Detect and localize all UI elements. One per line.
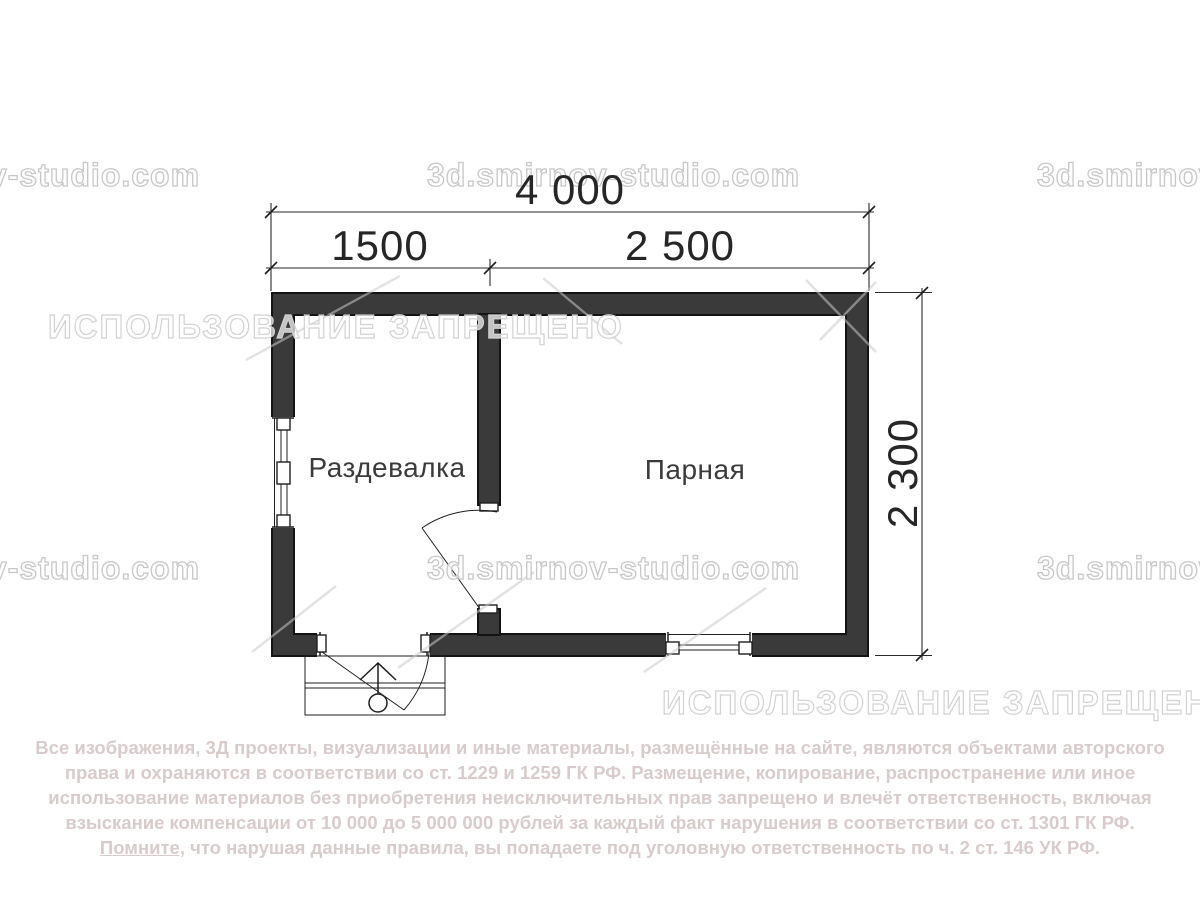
dimension-right-room-width: 2 500: [570, 222, 790, 270]
dimension-total-width: 4 000: [460, 166, 680, 214]
watermark-site-url: 3d.smirnov-studio.com: [1037, 550, 1200, 587]
watermark-usage-banned: ИСПОЛЬЗОВАНИЕ ЗАПРЕЩЕНО: [48, 308, 624, 346]
copyright-line: взыскание компенсации от 10 000 до 5 000…: [0, 810, 1200, 835]
room-label-steam-room: Парная: [595, 454, 795, 486]
dimension-lines: [265, 203, 932, 661]
copyright-notice: Все изображения, 3Д проекты, визуализаци…: [0, 735, 1200, 860]
watermark-site-url: 3d.smirnov-studio.com: [427, 550, 800, 587]
copyright-line-rest: что нарушая данные правила, вы попадаете…: [185, 837, 1100, 858]
room-label-changing-room: Раздевалка: [287, 452, 487, 484]
copyright-line: права и охраняются в соответствии со ст.…: [0, 760, 1200, 785]
watermark-usage-banned: ИСПОЛЬЗОВАНИЕ ЗАПРЕЩЕНО: [662, 684, 1200, 722]
bottom-window: [666, 630, 752, 658]
copyright-line: Помните, что нарушая данные правила, вы …: [0, 835, 1200, 860]
copyright-remember-underline: Помните,: [100, 837, 185, 858]
watermark-site-url: 3d.smirnov-studio.com: [1037, 157, 1200, 194]
dimension-left-room-width: 1500: [270, 222, 490, 270]
entrance-door: [317, 630, 430, 710]
watermark-site-url: 3d.smirnov-studio.com: [0, 157, 200, 194]
copyright-line: Все изображения, 3Д проекты, визуализаци…: [0, 735, 1200, 760]
copyright-line: использование материалов без приобретени…: [0, 785, 1200, 810]
watermark-site-url: 3d.smirnov-studio.com: [0, 550, 200, 587]
floor-plan-image: 4 000 1500 2 500 2 300 Раздевалка Парная…: [0, 0, 1200, 900]
porch-steps: [305, 656, 445, 715]
dimension-depth: 2 300: [879, 403, 927, 543]
